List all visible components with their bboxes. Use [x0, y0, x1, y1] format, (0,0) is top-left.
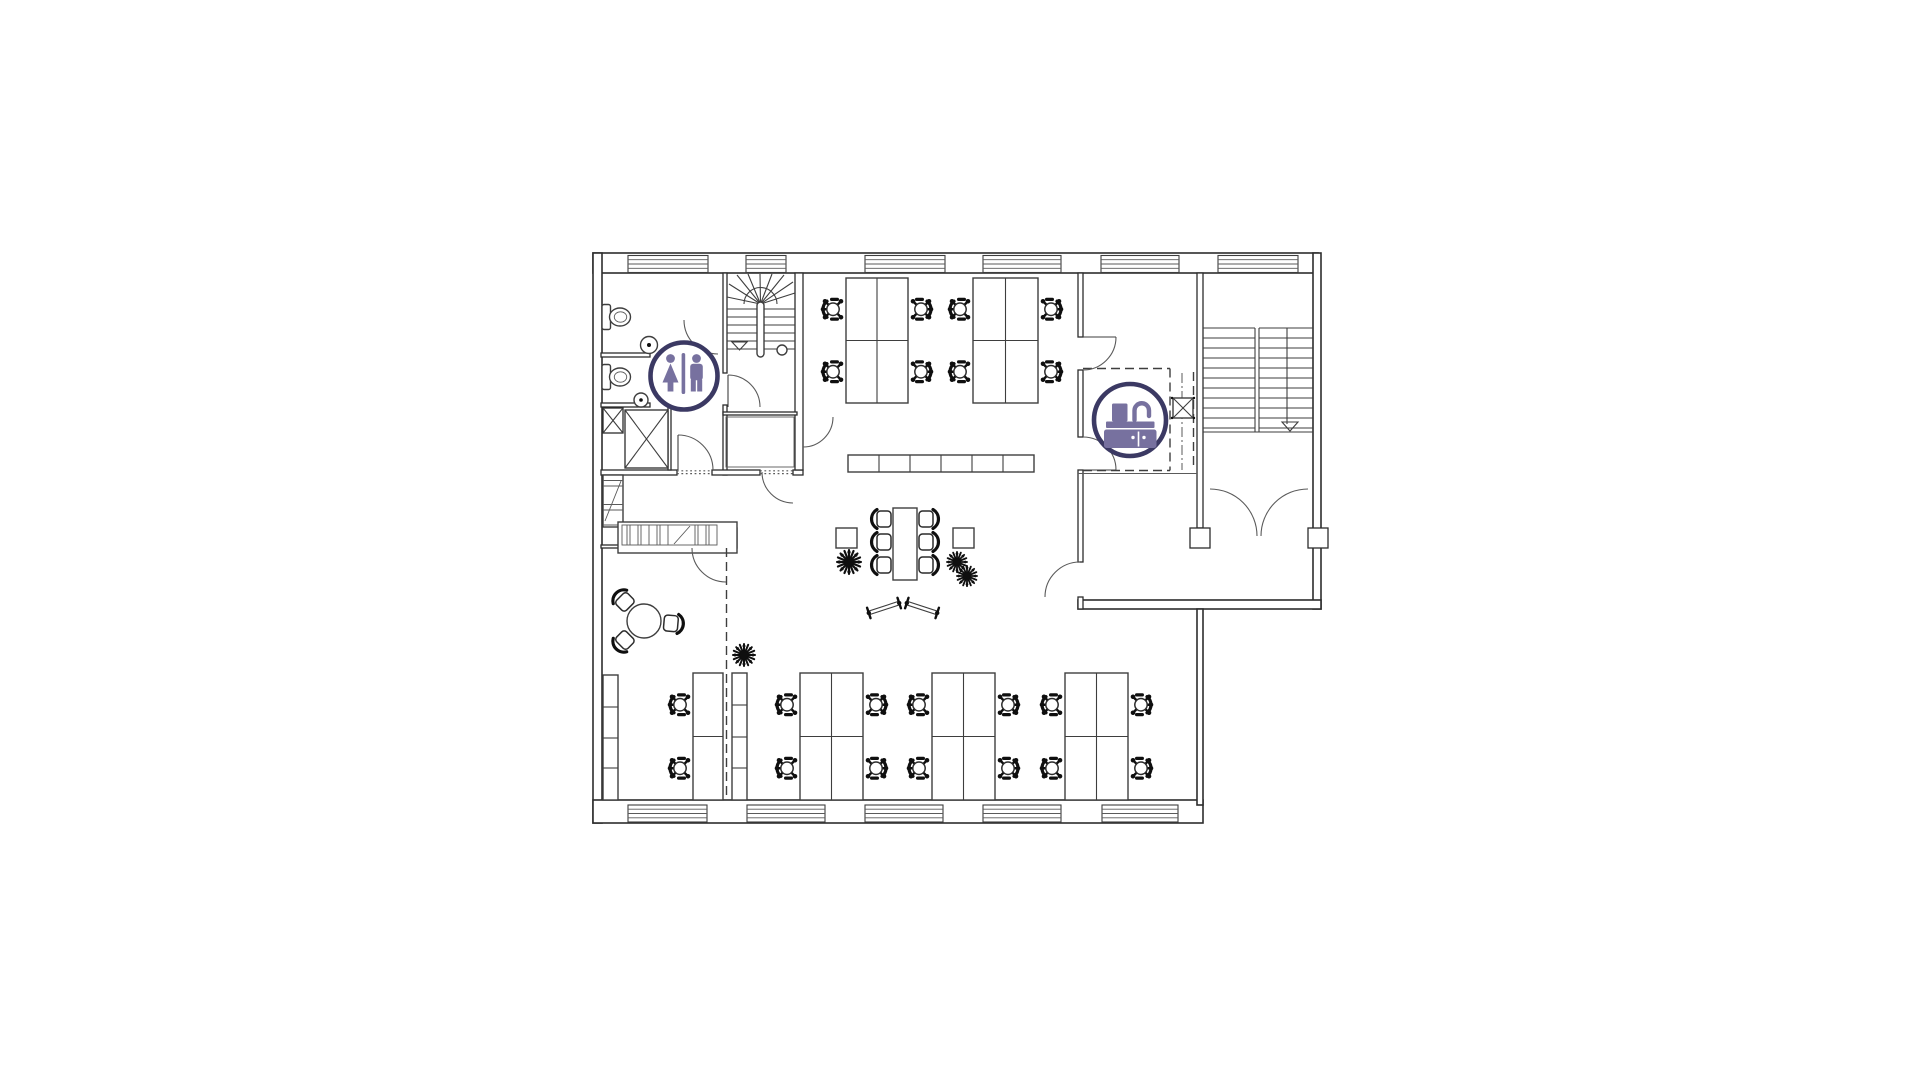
task-chair — [1131, 693, 1154, 716]
task-chair — [866, 757, 889, 780]
side-table — [953, 528, 974, 548]
entrance-door-leaf-left — [1210, 489, 1257, 536]
task-chair — [821, 360, 844, 383]
task-chair — [866, 693, 889, 716]
task-chair — [1040, 757, 1063, 780]
entrance-post-right — [1308, 528, 1328, 548]
door-corridor-top — [1083, 337, 1116, 370]
meeting-chair — [872, 533, 891, 552]
exterior-wall-right — [1313, 253, 1321, 609]
task-chair — [907, 757, 930, 780]
task-chair — [948, 360, 971, 383]
exterior-wall-east-block-bottom — [1078, 600, 1321, 609]
meeting-chair — [872, 510, 891, 529]
meeting-chair — [919, 510, 938, 529]
task-chair — [907, 693, 930, 716]
stair-newel — [757, 302, 764, 357]
door-storage-office — [762, 472, 793, 503]
task-chair — [998, 693, 1021, 716]
task-chair — [668, 693, 691, 716]
toilet — [602, 365, 631, 390]
lounge-chair — [663, 613, 684, 634]
entrance-post-left — [1190, 528, 1210, 548]
lounge-cabinets — [603, 475, 737, 553]
task-chair — [1040, 693, 1063, 716]
task-chair — [821, 298, 844, 321]
restroom-badge[interactable] — [651, 343, 718, 410]
floor-plan-canvas — [0, 0, 1921, 1081]
stair-down-arrow — [1282, 422, 1298, 431]
exterior-wall-right-lower — [1197, 609, 1203, 805]
toilet — [602, 305, 631, 330]
task-chair — [1041, 298, 1064, 321]
task-chair — [911, 360, 934, 383]
meeting-chair — [872, 556, 891, 575]
easel — [903, 597, 941, 619]
easel — [865, 597, 903, 619]
task-chair — [911, 298, 934, 321]
task-chair — [775, 693, 798, 716]
task-chair — [775, 757, 798, 780]
task-chair — [1131, 757, 1154, 780]
exterior-wall-left — [593, 253, 602, 823]
storage-closet — [726, 417, 794, 467]
kitchen-badge[interactable] — [1094, 384, 1166, 456]
stairwell-east — [1203, 328, 1313, 536]
meeting-table — [893, 508, 917, 580]
door-stair-landing — [728, 375, 760, 407]
entrance-door-leaf-right — [1261, 489, 1308, 536]
task-chair — [948, 298, 971, 321]
stair-column — [777, 345, 787, 355]
round-table — [627, 604, 661, 638]
meeting-chair — [919, 533, 938, 552]
stairwell-west — [726, 274, 795, 467]
plant — [837, 550, 861, 574]
side-table — [836, 528, 857, 548]
meeting-chair — [919, 556, 938, 575]
door-stairwall — [803, 417, 833, 447]
door-hall-office — [678, 435, 713, 470]
task-chair — [1041, 360, 1064, 383]
door-office-east — [1045, 562, 1080, 597]
plant — [733, 644, 755, 666]
task-chair — [668, 757, 691, 780]
task-chair — [998, 757, 1021, 780]
plant — [957, 566, 977, 586]
